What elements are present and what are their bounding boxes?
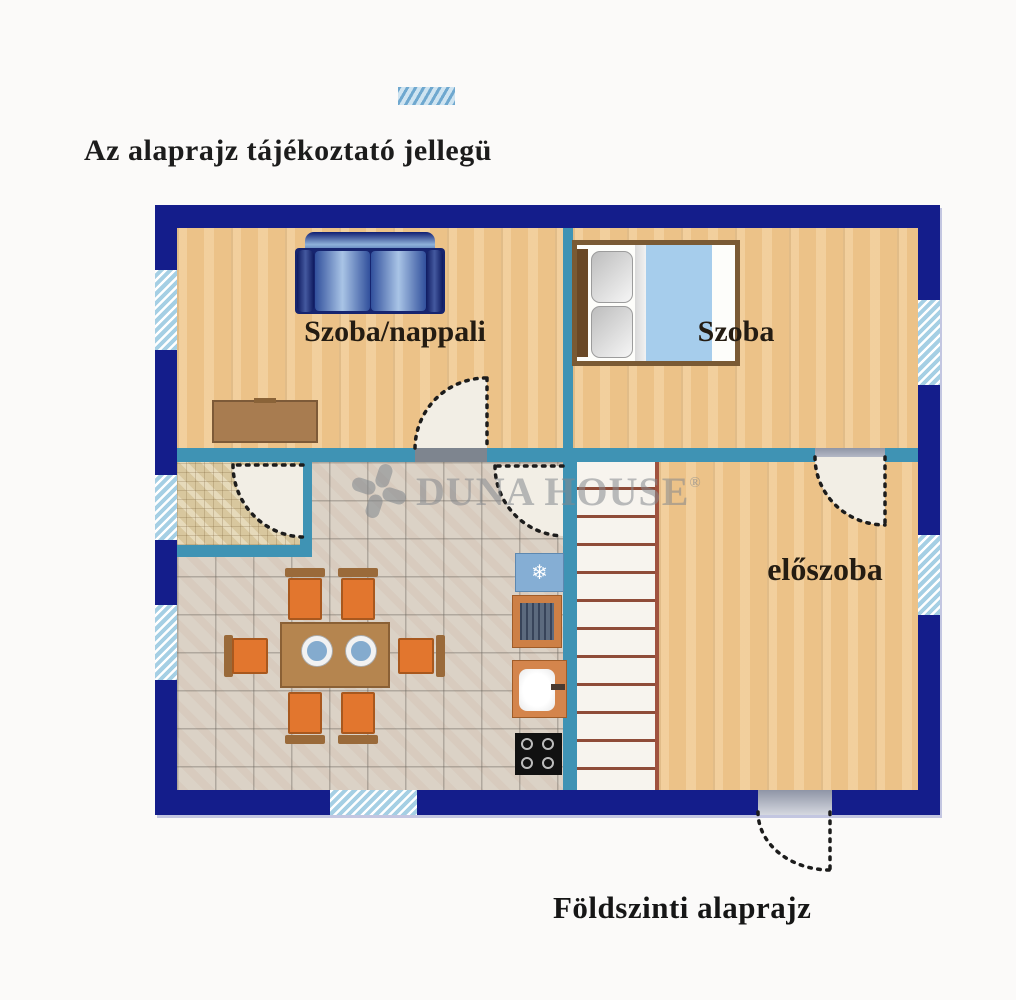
faucet-icon xyxy=(551,684,565,690)
sofa-cushion-right xyxy=(371,251,426,311)
dining-chair xyxy=(288,692,322,734)
floor-plan-page: Az alaprajz tájékoztató jellegü xyxy=(0,0,1016,1000)
chair-backrest xyxy=(285,735,325,744)
plate xyxy=(302,636,332,666)
dining-table xyxy=(280,622,390,688)
room-bathroom xyxy=(177,462,300,545)
chair-backrest xyxy=(436,635,445,677)
kitchen-sink xyxy=(512,660,567,718)
sink-basin xyxy=(519,669,555,711)
wall-bathroom-bottom xyxy=(177,545,312,557)
drainer-grid xyxy=(520,603,554,640)
caption-text: Földszinti alaprajz xyxy=(553,890,973,926)
dining-chair xyxy=(341,692,375,734)
floor-plan: ❄ Szoba/nappali Szoba előszoba xyxy=(155,205,940,815)
dining-chair xyxy=(288,578,322,620)
door-swing-entrance xyxy=(758,812,830,870)
sill-living-kitchen-door xyxy=(415,448,487,462)
sideboard-handle xyxy=(254,398,276,403)
snowflake-icon: ❄ xyxy=(531,560,548,584)
sideboard xyxy=(212,400,318,443)
wall-bathroom-right xyxy=(300,462,312,545)
room-hall xyxy=(659,462,918,790)
stove-burner xyxy=(521,757,533,769)
sofa xyxy=(295,248,445,314)
chair-backrest xyxy=(338,568,378,577)
window-kitchen-left xyxy=(155,605,177,680)
window-kitchen-bottom xyxy=(330,790,417,815)
stove-burner xyxy=(542,757,554,769)
label-living-room: Szoba/nappali xyxy=(270,315,520,349)
counter-drainer xyxy=(512,595,562,648)
disclaimer-text: Az alaprajz tájékoztató jellegü xyxy=(84,134,784,168)
window-bedroom-right xyxy=(918,300,940,385)
label-hall: előszoba xyxy=(720,551,930,588)
label-bedroom: Szoba xyxy=(636,315,836,349)
dining-chair xyxy=(341,578,375,620)
chair-backrest xyxy=(285,568,325,577)
sofa-armrest-right xyxy=(426,250,443,312)
bed-headboard xyxy=(577,249,588,357)
dining-chair xyxy=(398,638,434,674)
stove-burner xyxy=(521,738,533,750)
dining-chair xyxy=(232,638,268,674)
sofa-armrest-left xyxy=(297,250,314,312)
hatch-legend-swatch xyxy=(398,87,455,105)
sill-hall-door xyxy=(815,448,885,462)
staircase xyxy=(577,462,655,790)
stove-burner xyxy=(542,738,554,750)
window-living-left xyxy=(155,270,177,350)
wall-kitchen-stairs xyxy=(563,462,577,790)
window-bathroom-left xyxy=(155,475,177,540)
sofa-cushion-left xyxy=(315,251,370,311)
plate xyxy=(346,636,376,666)
pillow-bottom xyxy=(591,306,633,358)
chair-backrest xyxy=(338,735,378,744)
pillow-top xyxy=(591,251,633,303)
fridge: ❄ xyxy=(515,553,564,592)
sill-entrance-door xyxy=(758,790,832,815)
wall-horizontal-main xyxy=(177,448,918,462)
stove xyxy=(515,733,562,775)
